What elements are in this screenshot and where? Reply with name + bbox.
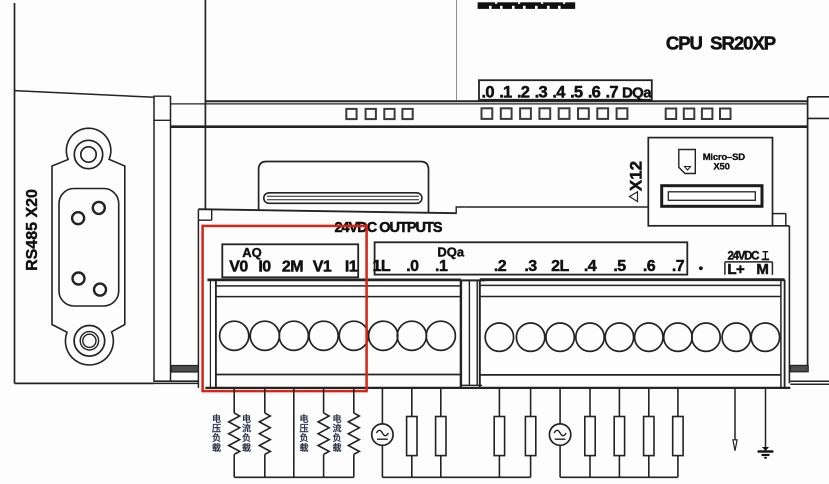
svg-text:2L: 2L	[551, 258, 569, 275]
svg-text:24VDC OUTPUTS: 24VDC OUTPUTS	[334, 220, 442, 236]
svg-text:V0: V0	[229, 259, 248, 276]
svg-text:.1: .1	[499, 83, 512, 101]
svg-text:.0: .0	[406, 258, 419, 275]
svg-text:.7: .7	[672, 258, 685, 275]
svg-text:1L: 1L	[372, 258, 390, 275]
svg-text:.6: .6	[643, 258, 656, 275]
svg-text:.3: .3	[524, 258, 537, 275]
svg-text:.5: .5	[570, 83, 583, 101]
svg-text:.4: .4	[552, 83, 566, 101]
svg-text:.6: .6	[588, 83, 601, 101]
svg-text:电压负载: 电压负载	[212, 413, 221, 453]
svg-text:L+: L+	[727, 261, 745, 278]
svg-text:.5: .5	[613, 258, 626, 275]
svg-text:M: M	[756, 261, 769, 278]
svg-text:2M: 2M	[282, 259, 303, 276]
svg-text:.7: .7	[606, 83, 619, 101]
svg-text:DQa: DQa	[622, 84, 652, 101]
svg-text:.2: .2	[517, 83, 530, 101]
svg-text:电流负载: 电流负载	[242, 413, 251, 453]
svg-text:V1: V1	[313, 259, 332, 276]
svg-text:RS485 X20: RS485 X20	[24, 189, 41, 271]
svg-text:I0: I0	[258, 259, 271, 276]
svg-text:.0: .0	[482, 83, 495, 101]
svg-text:X12: X12	[627, 161, 646, 191]
svg-text:CPU SR20XP: CPU SR20XP	[666, 33, 776, 54]
svg-text:X50: X50	[713, 162, 729, 173]
svg-text:电压负载: 电压负载	[299, 413, 308, 453]
svg-text:.4: .4	[584, 258, 597, 275]
svg-text:I1: I1	[345, 259, 358, 276]
svg-text:.2: .2	[494, 258, 507, 275]
svg-text:.3: .3	[535, 83, 548, 101]
svg-text:.1: .1	[435, 258, 448, 275]
svg-text:电流负载: 电流负载	[332, 413, 341, 453]
